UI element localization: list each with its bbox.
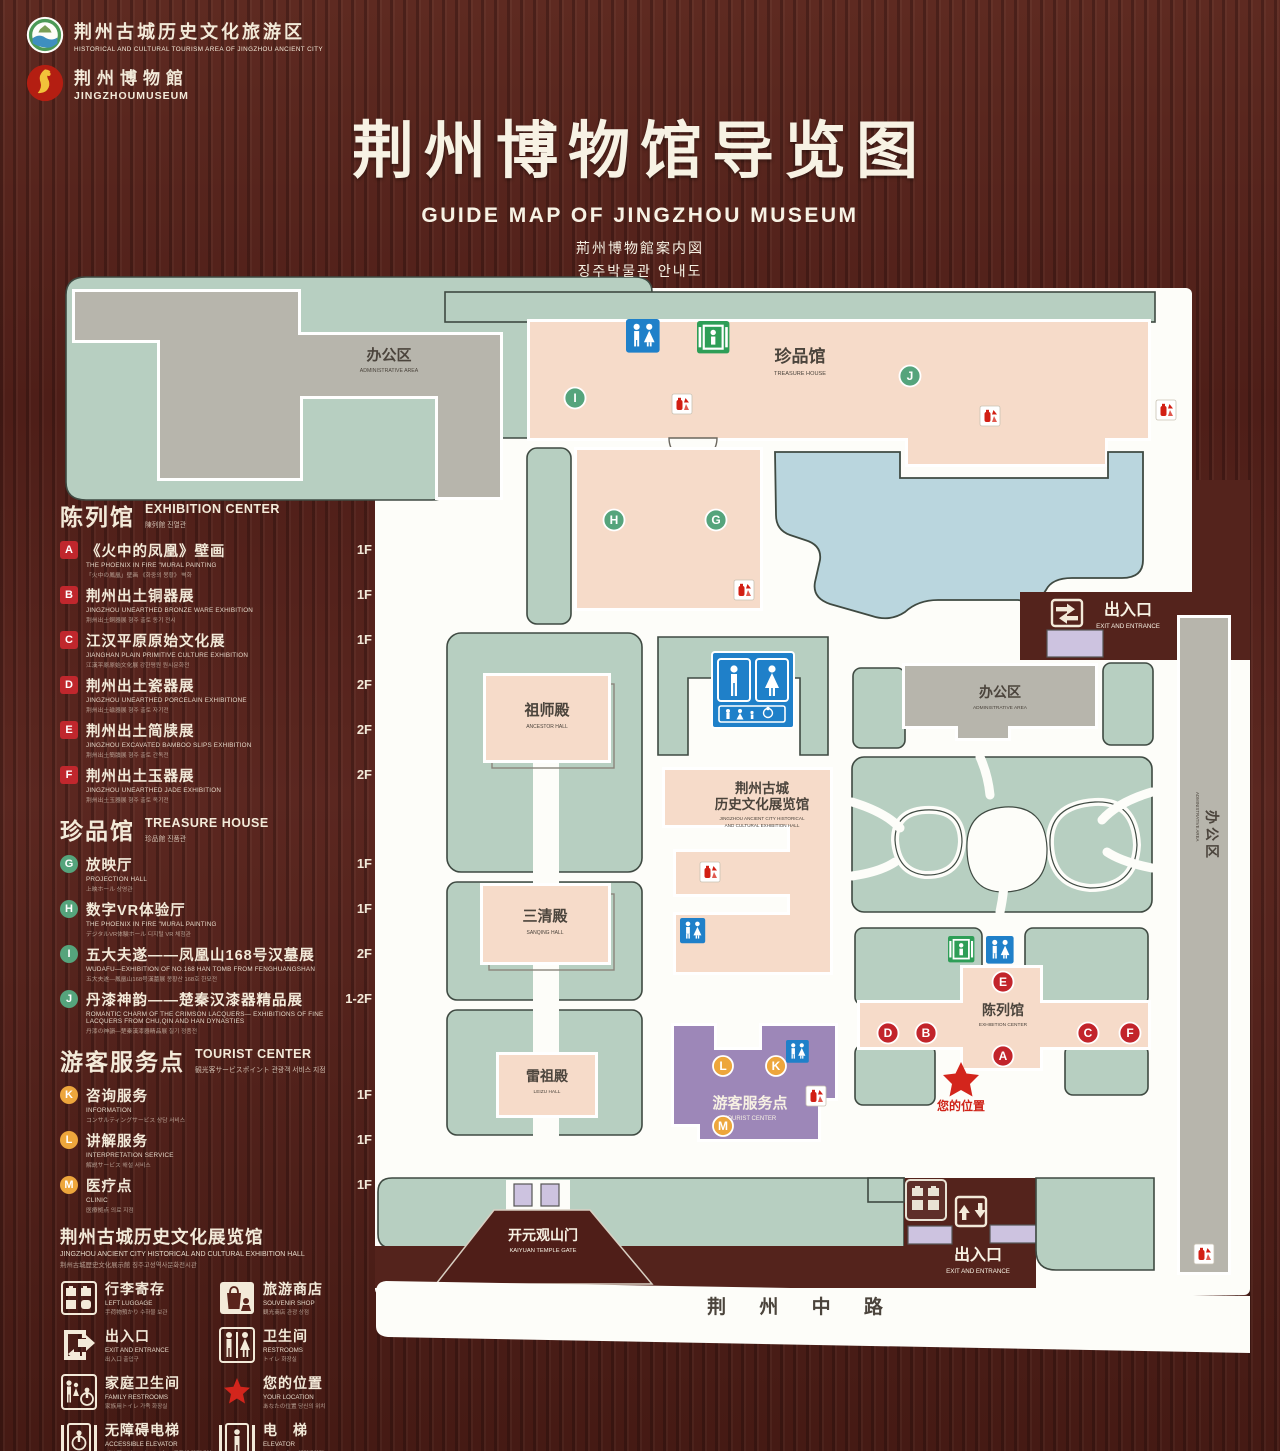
kaiyuan-gate-label-en: KAIYUAN TEMPLE GATE [509,1248,576,1254]
leizu-hall-label: 雷祖殿 [526,1068,569,1084]
exhibition-heading-sub: 陳列館 진열관 [145,519,280,529]
item-L-floor: 1F [338,1130,372,1169]
item-B-label: 荆州出土铜器展 [86,585,330,606]
svg-text:I: I [573,391,576,405]
item-H-label: 数字VR体验厅 [86,899,330,920]
item-C-sub: 江漢平原原始文化展 강한평원 원시문화전 [86,660,330,669]
badge-A: A [60,541,78,559]
item-C-floor: 1F [338,630,372,669]
item-I-sub: 五大夫遂—鳳凰山168号漢墓展 봉황산 168호 한묘전 [86,974,330,983]
marker-A: A [993,1046,1014,1067]
elevator-legend-en: ELEVATOR [263,1441,324,1448]
tourism-area-logo-title: 荆州古城历史文化旅游区 [74,18,323,44]
fire-extinguisher-icon [980,406,1000,426]
item-M-sub: 医療拠点 의료 지점 [86,1205,330,1214]
badge-F: F [60,766,78,784]
legend-item-M: M 医疗点CLINIC医療拠点 의료 지점 1F [60,1175,372,1214]
left-luggage-label: 行李寄存 [105,1279,167,1299]
item-K-label: 咨询服务 [86,1085,330,1106]
item-F-sub: 荆州出土玉器展 형주 출토 옥기전 [86,795,330,804]
family-restrooms-sub: 家族用トイレ 가족 화장실 [105,1402,180,1410]
admin-strip-label: 办公区 [1204,810,1220,861]
restroom-icon [986,936,1014,964]
svg-text:G: G [711,513,720,527]
legend-tourist-heading: 游客服务点 TOURIST CENTER 観光客サービスポイント 관광객 서비스… [60,1043,372,1077]
hall-note-en: JINGZHOU ANCIENT CITY HISTORICAL AND CUL… [60,1251,372,1258]
garden [852,757,1152,912]
tourism-area-logo-subtitle: HISTORICAL AND CULTURAL TOURISM AREA OF … [74,46,323,53]
svg-text:M: M [718,1119,728,1133]
svg-text:A: A [999,1049,1008,1063]
item-J-floor: 1-2F [338,989,372,1035]
hall-note: 荆州古城历史文化展览馆 JINGZHOU ANCIENT CITY HISTOR… [60,1224,372,1269]
item-L-en: INTERPRETATION SERVICE [86,1152,330,1159]
legend-item-H: H 数字VR体验厅THE PHOENIX IN FIRE "MURAL PAIN… [60,899,372,938]
badge-G: G [60,855,78,873]
badge-C: C [60,631,78,649]
legend-item-C: C 江汉平原原始文化展JIANGHAN PLAIN PRIMITIVE CULT… [60,630,372,669]
history-hall: 荆州古城 历史文化展览馆 JINGZHOU ANCIENT CITY HISTO… [665,770,830,972]
item-G-en: PROJECTION HALL [86,876,330,883]
svg-text:C: C [1084,1026,1093,1040]
icon-legend-grid: 行李寄存LEFT LUGGAGE手荷物預かり 수하물 보관 旅游商店SOUVEN… [60,1279,372,1451]
elevator-icon [948,936,974,962]
exit-entrance-icon [60,1326,98,1364]
fire-extinguisher-icon [672,394,692,414]
legend-item-E: E 荆州出土简牍展JINGZHOU EXCAVATED BAMBOO SLIPS… [60,720,372,759]
museum-logo-subtitle: JINGZHOUMUSEUM [74,90,189,102]
museum-logo-icon [26,64,64,102]
tourist-heading-en: TOURIST CENTER [195,1043,325,1061]
item-K-en: INFORMATION [86,1107,330,1114]
item-C-label: 江汉平原原始文化展 [86,630,330,651]
marker-C: C [1078,1023,1099,1044]
item-J-sub: 丹漆の神韻—楚秦漢漆器精品展 칠기 정품전 [86,1026,330,1035]
item-D-en: JINGZHOU UNEARTHED PORCELAIN EXHIBITIONE [86,697,330,704]
item-A-floor: 1F [338,540,372,579]
ancestor-hall-label: 祖师殿 [523,701,570,719]
marker-E: E [993,972,1014,993]
restrooms-en: RESTROOMS [263,1347,308,1354]
marker-F: F [1120,1023,1141,1044]
legend-item-F: F 荆州出土玉器展JINGZHOU UNEARTHED JADE EXHIBIT… [60,765,372,804]
museum-logo-title: 荆州博物館 [74,64,189,89]
your-location-legend-sub: あなたの位置 당신의 위치 [263,1402,325,1410]
title-block: 荆州博物馆导览图 GUIDE MAP OF JINGZHOU MUSEUM 荊州… [240,100,1040,281]
admin-e-label-en: ADMINISTRATIVE AREA [973,705,1028,711]
svg-text:H: H [610,513,619,527]
treasure-heading-en: TREASURE HOUSE [145,812,269,830]
restroom-icon [680,918,705,943]
restrooms-sub: トイレ 화장실 [263,1355,308,1363]
your-location-legend-label: 您的位置 [263,1373,325,1393]
leizu-hall-label-en: LEIZU HALL [534,1089,561,1095]
item-E-label: 荆州出土简牍展 [86,720,330,741]
item-J-en: ROMANTIC CHARM OF THE CRIMSON LACQUERS— … [86,1011,330,1025]
ancestor-hall-label-en: ANCESTOR HALL [526,724,568,730]
item-F-label: 荆州出土玉器展 [86,765,330,786]
tourist-center-label: 游客服务点 [712,1094,787,1112]
legend-accessible-elevator: 无障碍电梯ACCESSIBLE ELEVATORバリアフリーエレベーター 무장애… [60,1420,212,1451]
your-location-icon [218,1373,256,1411]
your-location-legend-en: YOUR LOCATION [263,1394,325,1401]
accessible-elevator-icon [60,1420,98,1451]
item-G-label: 放映厅 [86,854,330,875]
item-I-label: 五大夫遂——凤凰山168号汉墓展 [86,944,330,965]
exit-entrance-en: EXIT AND ENTRANCE [105,1347,169,1354]
marker-J: J [900,366,921,387]
accessible-elevator-label: 无障碍电梯 [105,1420,212,1440]
item-A-en: THE PHOENIX IN FIRE "MURAL PAINTING [86,562,330,569]
marker-D: D [878,1023,899,1044]
road-label: 荆 州 中 路 [707,1295,897,1318]
exhibition-heading-en: EXHIBITION CENTER [145,498,280,516]
souvenir-shop-sub: 観光商店 관광 상점 [263,1308,323,1316]
elevator-legend-label: 电 梯 [263,1420,324,1440]
legend-exit-entrance: 出入口EXIT AND ENTRANCE出入口 출입구 [60,1326,212,1364]
family-restrooms-en: FAMILY RESTROOMS [105,1394,180,1401]
tourism-area-logo-row: 荆州古城历史文化旅游区 HISTORICAL AND CULTURAL TOUR… [26,16,323,54]
treasure-house-wing [577,450,760,608]
guide-map-poster: 办公区 ADMINISTRATIVE AREA 珍品馆 TREASURE HOU… [0,0,1280,1451]
item-K-sub: コンサルティングサービス 상담 서비스 [86,1115,330,1124]
restroom-icon [626,319,660,353]
fire-extinguisher-icon [700,862,720,882]
office-strip: 办公区 ADMINISTRATIVE AREA [1180,618,1228,1272]
legend-item-G: G 放映厅PROJECTION HALL上映ホール 상영관 1F [60,854,372,893]
item-I-floor: 2F [338,944,372,983]
exit-entrance-sub: 出入口 출입구 [105,1355,169,1363]
treasure-heading-sub: 珍品館 진품관 [145,833,269,843]
fire-extinguisher-icon [1156,400,1176,420]
left-luggage-sub: 手荷物預かり 수하물 보관 [105,1308,167,1316]
restrooms-label: 卫生间 [263,1326,308,1346]
east-office: 办公区 ADMINISTRATIVE AREA [853,663,1153,748]
legend-item-D: D 荆州出土瓷器展JINGZHOU UNEARTHED PORCELAIN EX… [60,675,372,714]
item-A-sub: 「火中の鳳凰」壁画 《화중의 봉황》 벽화 [86,570,330,579]
page-title-jp: 荊州博物館案内図 [240,238,1040,258]
badge-I: I [60,945,78,963]
family-restrooms-label: 家庭卫生间 [105,1373,180,1393]
tourism-area-logo-icon [26,16,64,54]
item-J-label: 丹漆神韵——楚秦汉漆器精品展 [86,989,330,1010]
garden-pond [967,807,1047,892]
legend-item-L: L 讲解服务INTERPRETATION SERVICE解説サービス 해설 서비… [60,1130,372,1169]
item-B-en: JINGZHOU UNEARTHED BRONZE WARE EXHIBITIO… [86,607,330,614]
badge-M: M [60,1176,78,1194]
treasure-heading-cn: 珍品馆 [60,812,135,846]
item-E-en: JINGZHOU EXCAVATED BAMBOO SLIPS EXHIBITI… [86,742,330,749]
badge-K: K [60,1086,78,1104]
legend-treasure-heading: 珍品馆 TREASURE HOUSE 珍品館 진품관 [60,812,372,846]
sanqing-hall-label: 三清殿 [522,907,568,925]
svg-text:B: B [922,1026,931,1040]
kaiyuan-gate-label: 开元观山门 [508,1227,578,1243]
gate-building [1047,630,1103,657]
history-hall-label-en1: JINGZHOU ANCIENT CITY HISTORICAL [720,816,805,821]
svg-text:J: J [907,369,914,383]
hall-note-sub: 荆州古城歴史文化展示館 징주고성역사문화전시관 [60,1260,372,1269]
svg-text:L: L [719,1059,726,1073]
item-G-sub: 上映ホール 상영관 [86,884,330,893]
item-B-floor: 1F [338,585,372,624]
admin-nw-label: 办公区 [366,346,411,364]
sanqing-hall-label-en: SANQING HALL [527,930,564,936]
item-G-floor: 1F [338,854,372,893]
item-M-floor: 1F [338,1175,372,1214]
item-H-sub: デジタルVR体験ホール 디지털 VR 체험관 [86,929,330,938]
treasure-label: 珍品馆 [775,346,826,366]
office-strip-building [1180,618,1228,1272]
fire-extinguisher-icon [1194,1244,1214,1264]
item-B-sub: 荆州出土銅器展 형주 출토 동기 전시 [86,615,330,624]
restroom-icon [786,1040,809,1063]
legend-item-I: I 五大夫遂——凤凰山168号汉墓展WUDAFU—EXHIBITION OF N… [60,944,372,983]
admin-nw-label-en: ADMINISTRATIVE AREA [360,368,419,374]
marker-K: K [766,1056,786,1076]
item-M-en: CLINIC [86,1197,330,1204]
badge-E: E [60,721,78,739]
legend-item-K: K 咨询服务INFORMATIONコンサルティングサービス 상담 서비스 1F [60,1085,372,1124]
souvenir-shop-en: SOUVENIR SHOP [263,1300,323,1307]
souvenir-shop-label: 旅游商店 [263,1279,323,1299]
item-L-sub: 解説サービス 해설 서비스 [86,1160,330,1169]
elevator-icon [218,1420,256,1451]
fire-extinguisher-icon [806,1086,826,1106]
exit-entrance-label: 出入口 [105,1326,169,1346]
exit-south-label: 出入口 [954,1245,1002,1264]
your-location-label: 您的位置 [937,1098,985,1113]
history-hall-label-2: 历史文化展览馆 [715,796,810,812]
header-logos: 荆州古城历史文化旅游区 HISTORICAL AND CULTURAL TOUR… [26,16,323,112]
admin-strip-label-en: ADMINISTRATIVE AREA [1195,792,1200,842]
item-A-label: 《火中的凤凰》壁画 [86,540,330,561]
marker-M: M [713,1116,733,1136]
elevator-icon [697,321,729,353]
accessible-elevator-en: ACCESSIBLE ELEVATOR [105,1441,212,1448]
marker-I: I [565,388,586,409]
temple-courtyard: 祖师殿 ANCESTOR HALL 三清殿 SANQING HALL 雷祖殿 L… [447,633,642,1180]
history-hall-label-en2: AND CULTURAL EXHIBITION HALL [725,823,800,828]
svg-text:K: K [772,1059,781,1073]
marker-G: G [706,510,727,531]
item-E-floor: 2F [338,720,372,759]
item-F-en: JINGZHOU UNEARTHED JADE EXHIBITION [86,787,330,794]
exhibition-heading-cn: 陈列馆 [60,498,135,532]
legend-your-location: 您的位置YOUR LOCATIONあなたの位置 당신의 위치 [218,1373,370,1411]
page-title-kr: 징주박물관 안내도 [240,261,1040,281]
admin-e-label: 办公区 [979,684,1021,700]
item-D-floor: 2F [338,675,372,714]
page-title: 荆州博物馆导览图 [240,100,1040,190]
legend-item-J: J 丹漆神韵——楚秦汉漆器精品展ROMANTIC CHARM OF THE CR… [60,989,372,1035]
item-D-label: 荆州出土瓷器展 [86,675,330,696]
legend-elevator: 电 梯ELEVATORエレベーター 엘리베이터 [218,1420,370,1451]
svg-text:F: F [1126,1026,1133,1040]
badge-B: B [60,586,78,604]
souvenir-shop-icon [218,1279,256,1317]
item-F-floor: 2F [338,765,372,804]
item-H-floor: 1F [338,899,372,938]
exhibition-center-label-en: EXHIBITION CENTER [979,1022,1028,1028]
svg-text:E: E [999,975,1007,989]
exit-ne-label-en: EXIT AND ENTRANCE [1096,623,1160,630]
badge-D: D [60,676,78,694]
item-L-label: 讲解服务 [86,1130,330,1151]
exit-south-label-en: EXIT AND ENTRANCE [946,1268,1010,1275]
treasure-label-en: TREASURE HOUSE [774,371,826,377]
fire-extinguisher-icon [734,580,754,600]
item-E-sub: 荆州出土簡牘展 형주 출토 간독전 [86,750,330,759]
exhibition-center-label: 陈列馆 [982,1002,1024,1018]
legend-souvenir-shop: 旅游商店SOUVENIR SHOP観光商店 관광 상점 [218,1279,370,1317]
leizu-hall [499,1055,595,1115]
item-C-en: JIANGHAN PLAIN PRIMITIVE CULTURE EXHIBIT… [86,652,330,659]
restrooms-icon [218,1326,256,1364]
legend-item-B: B 荆州出土铜器展JINGZHOU UNEARTHED BRONZE WARE … [60,585,372,624]
exit-ne-label: 出入口 [1104,600,1152,619]
item-I-en: WUDAFU—EXHIBITION OF NO.168 HAN TOMB FRO… [86,966,330,973]
left-luggage-en: LEFT LUGGAGE [105,1300,167,1307]
item-K-floor: 1F [338,1085,372,1124]
badge-H: H [60,900,78,918]
marker-L: L [713,1056,733,1076]
marker-B: B [916,1023,937,1044]
item-M-label: 医疗点 [86,1175,330,1196]
east-office-building [905,666,1095,738]
badge-J: J [60,990,78,1008]
svg-text:D: D [884,1026,893,1040]
page-title-en: GUIDE MAP OF JINGZHOU MUSEUM [240,204,1040,228]
legend-left-luggage: 行李寄存LEFT LUGGAGE手荷物預かり 수하물 보관 [60,1279,212,1317]
item-D-sub: 荆州出土磁器展 형주 출토 자기전 [86,705,330,714]
marker-H: H [604,510,625,531]
family-restrooms-icon [60,1373,98,1411]
legend-item-A: A 《火中的凤凰》壁画THE PHOENIX IN FIRE "MURAL PA… [60,540,372,579]
legend-family-restrooms: 家庭卫生间FAMILY RESTROOMS家族用トイレ 가족 화장실 [60,1373,212,1411]
legend-exhibition-heading: 陈列馆 EXHIBITION CENTER 陳列館 진열관 [60,498,372,532]
south-area: 开元观山门 KAIYUAN TEMPLE GATE 出入口 EXIT AND E… [375,1178,1250,1353]
hall-note-label: 荆州古城历史文化展览馆 [60,1224,372,1249]
left-luggage-icon [60,1279,98,1317]
history-hall-label-1: 荆州古城 [735,780,789,796]
tourist-heading-cn: 游客服务点 [60,1043,185,1077]
tourist-heading-sub: 観光客サービスポイント 관광객 서비스 지점 [195,1064,325,1074]
legend-panel: 陈列馆 EXHIBITION CENTER 陳列館 진열관 A 《火中的凤凰》壁… [60,496,372,1451]
badge-L: L [60,1131,78,1149]
item-H-en: THE PHOENIX IN FIRE "MURAL PAINTING [86,921,330,928]
legend-restrooms: 卫生间RESTROOMSトイレ 화장실 [218,1326,370,1364]
museum-logo-row: 荆州博物館 JINGZHOUMUSEUM [26,64,323,102]
